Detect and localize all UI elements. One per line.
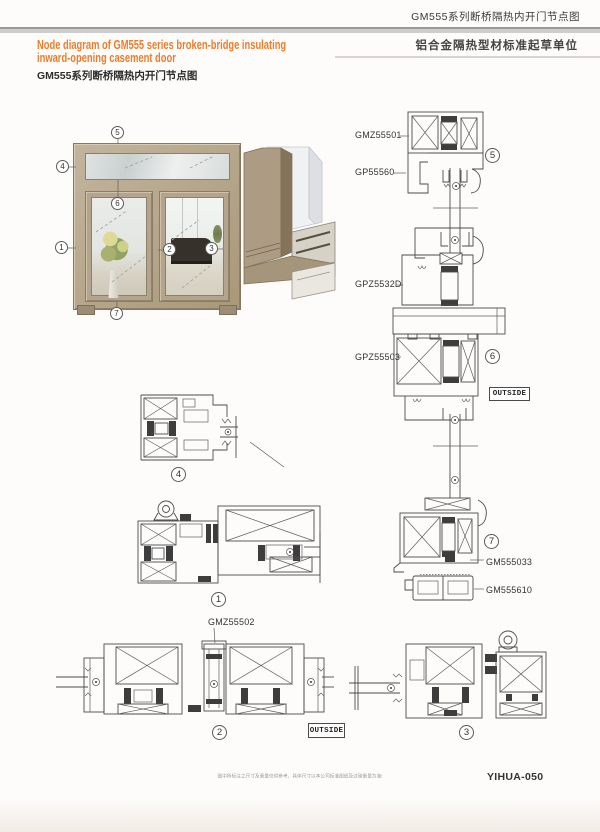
section-marker-1: 1 [211, 592, 226, 607]
subtitle-divider [335, 56, 600, 58]
section-marker-2: 2 [212, 725, 227, 740]
page-title-en-line2: inward-opening casement door [37, 51, 176, 64]
transom-window [85, 153, 230, 180]
plant-silhouette [213, 225, 222, 242]
section-marker-6: 6 [485, 349, 500, 364]
footer-disclaimer: 图中所标注之尺寸及重量仅供参考，具体尺寸以本公司标准图纸及过磅重量为准! [217, 772, 382, 779]
section-3-drawing [349, 631, 546, 718]
door-callout-2: 2 [163, 243, 176, 256]
page-title-cn: GM555系列断桥隔热内开门节点图 [37, 68, 197, 83]
door-foot-left [77, 305, 95, 315]
door-glass-left [91, 197, 147, 296]
door-callout-1: 1 [55, 241, 68, 254]
door-callout-4: 4 [56, 160, 69, 173]
section-1-drawing [138, 501, 320, 583]
header-title-cn: GM555系列断桥隔热内开门节点图 [411, 9, 580, 24]
part-label-gpz55503: GPZ55503 [355, 352, 400, 362]
part-label-gm555610: GM555610 [486, 585, 532, 595]
part-label-gmz55501: GMZ55501 [355, 130, 402, 140]
page-bottom-tint [0, 798, 600, 832]
door-photo [73, 143, 241, 310]
door-callout-6: 6 [111, 197, 124, 210]
technical-drawings [0, 0, 600, 832]
page-code: YIHUA-050 [487, 771, 543, 783]
section-marker-5: 5 [485, 148, 500, 163]
door-foot-right [219, 305, 237, 315]
section-marker-4: 4 [171, 467, 186, 482]
label-leader-lines [214, 136, 484, 643]
door-callout-5: 5 [111, 126, 124, 139]
section-marker-3: 3 [459, 725, 474, 740]
flower-decor [97, 224, 135, 274]
door-callout-3: 3 [205, 242, 218, 255]
vase-decor [108, 270, 119, 298]
section-marker-7: 7 [484, 534, 499, 549]
outside-label-vertical: OUTSIDE [489, 387, 530, 401]
part-label-gpz5532d: GPZ5532D [355, 279, 402, 289]
header-subtitle-cn: 铝合金隔热型材标准起草单位 [416, 37, 579, 53]
part-label-gmz55502: GMZ55502 [208, 617, 255, 627]
profile-3d-render [244, 147, 335, 299]
part-label-gm555033: GM555033 [486, 557, 532, 567]
part-label-gp55560: GP55560 [355, 167, 394, 177]
outside-label-horizontal: OUTSIDE [308, 723, 345, 738]
catalog-page: GM555系列断桥隔热内开门节点图 铝合金隔热型材标准起草单位 Node dia… [0, 0, 600, 832]
section-4-drawing [141, 395, 284, 467]
header-divider [0, 27, 600, 33]
door-callout-7: 7 [110, 307, 123, 320]
section-2-drawing [56, 641, 334, 714]
